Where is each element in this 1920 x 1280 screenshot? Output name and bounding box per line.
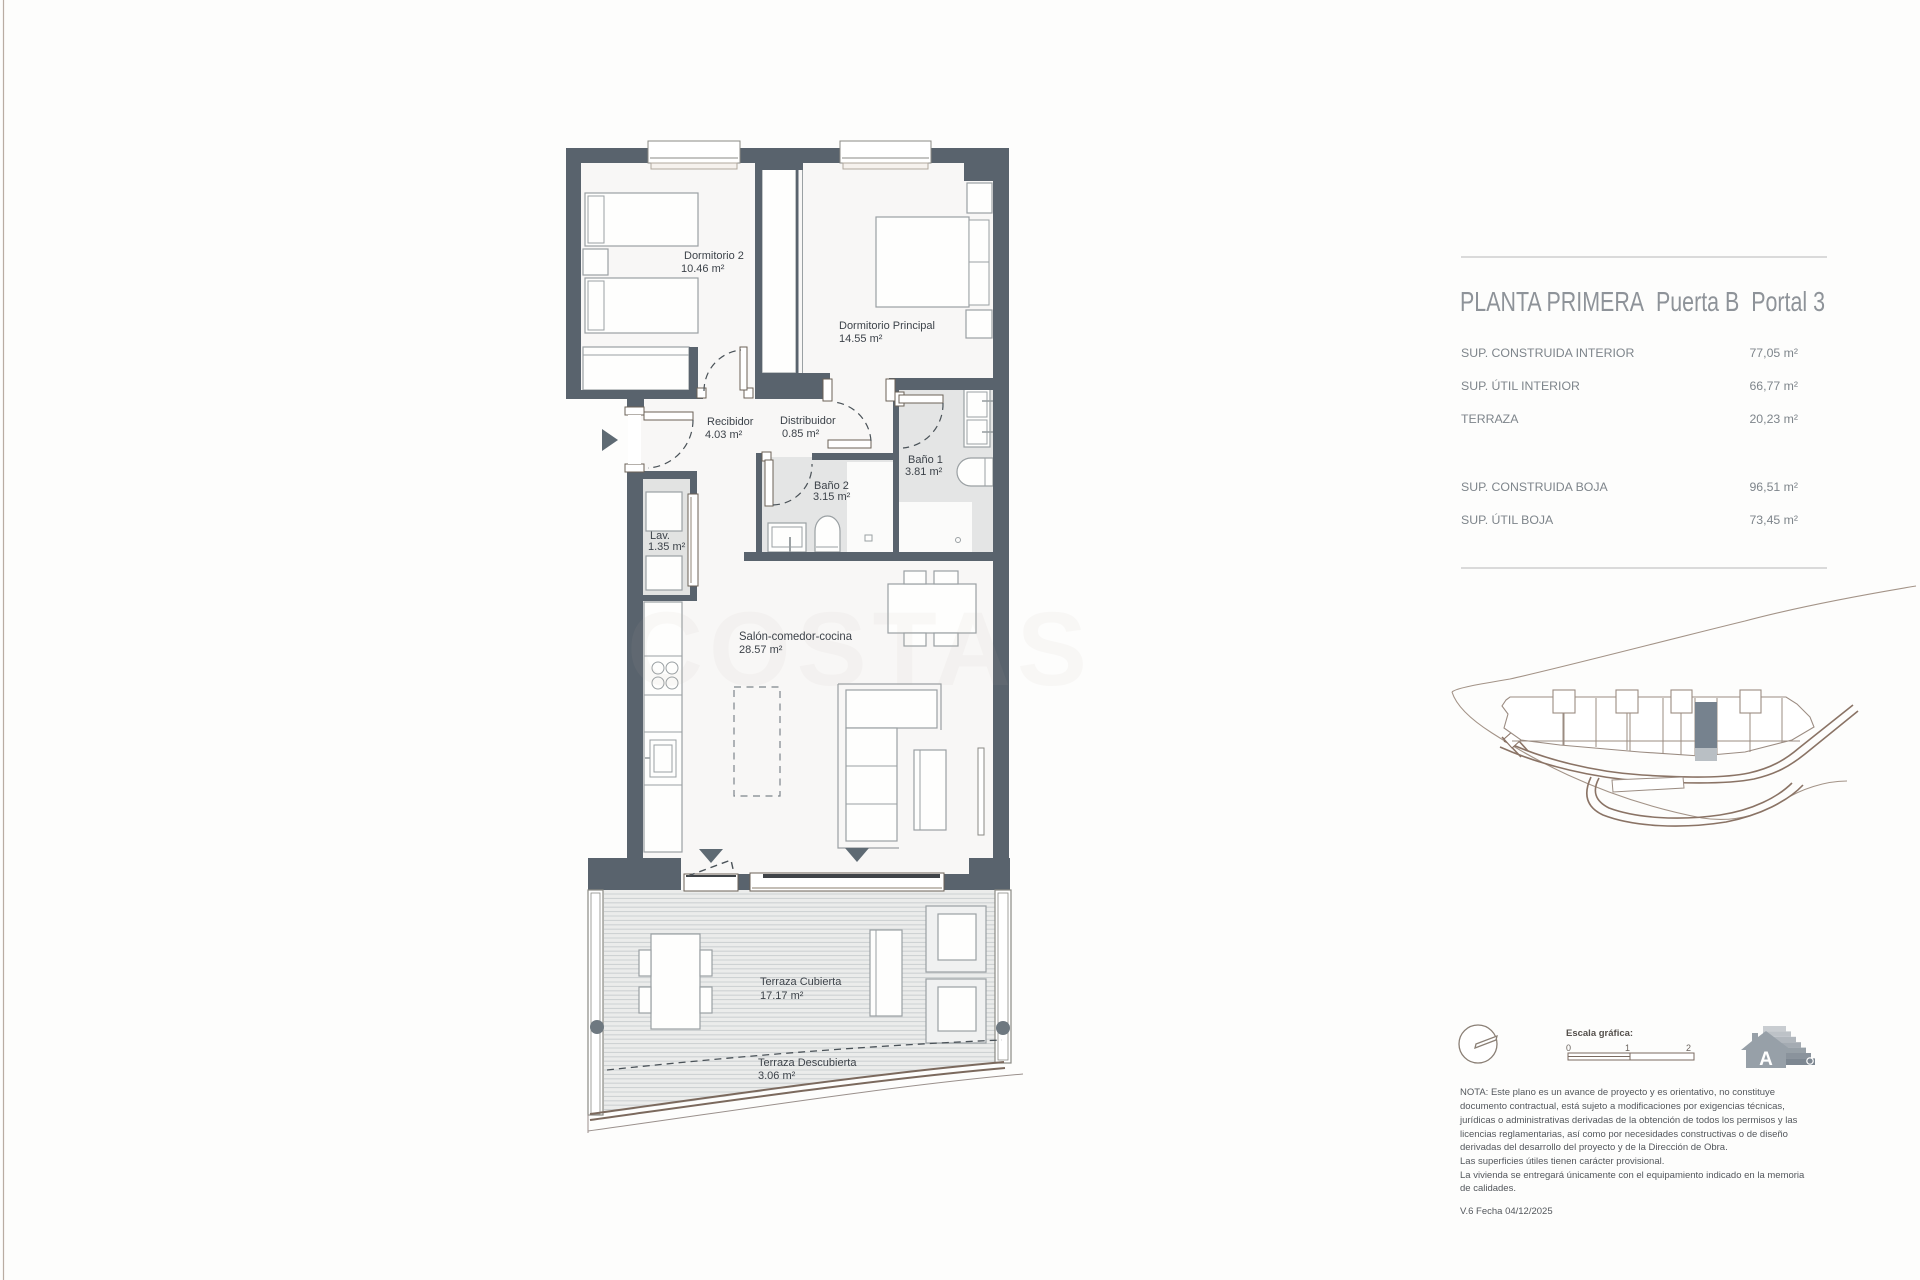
svg-text:TERRAZA: TERRAZA (1461, 412, 1519, 426)
svg-text:A: A (1759, 1049, 1773, 1070)
svg-text:Terraza Cubierta: Terraza Cubierta (760, 976, 842, 988)
svg-text:Recibidor: Recibidor (707, 416, 754, 428)
svg-text:Dormitorio 2: Dormitorio 2 (684, 250, 744, 262)
svg-text:de calidades.: de calidades. (1460, 1183, 1516, 1194)
svg-text:Baño 1: Baño 1 (908, 454, 943, 466)
svg-text:96,51 m²: 96,51 m² (1749, 480, 1798, 494)
svg-text:14.55 m²: 14.55 m² (839, 333, 883, 345)
svg-text:SUP. CONSTRUIDA INTERIOR: SUP. CONSTRUIDA INTERIOR (1461, 346, 1634, 360)
svg-text:1.35 m²: 1.35 m² (648, 541, 686, 553)
svg-text:28.57 m²: 28.57 m² (739, 644, 783, 656)
svg-text:SUP. ÚTIL BOJA: SUP. ÚTIL BOJA (1461, 512, 1554, 527)
svg-text:V.6 Fecha 04/12/2025: V.6 Fecha 04/12/2025 (1460, 1206, 1553, 1217)
svg-text:Terraza Descubierta: Terraza Descubierta (758, 1057, 857, 1069)
svg-text:SUP. CONSTRUIDA BOJA: SUP. CONSTRUIDA BOJA (1461, 480, 1608, 494)
svg-text:4.03 m²: 4.03 m² (705, 429, 743, 441)
svg-text:Distribuidor: Distribuidor (780, 415, 836, 427)
svg-text:77,05 m²: 77,05 m² (1749, 346, 1798, 360)
svg-text:jurídicas o administrativas de: jurídicas o administrativas derivadas de… (1459, 1115, 1798, 1126)
svg-text:derivadas del desarrollo del p: derivadas del desarrollo del proyecto y … (1460, 1142, 1728, 1153)
svg-text:SUP. ÚTIL INTERIOR: SUP. ÚTIL INTERIOR (1461, 378, 1580, 393)
svg-text:documento contractual, está su: documento contractual, está sujeto a mod… (1460, 1101, 1785, 1112)
svg-text:3.15 m²: 3.15 m² (813, 491, 851, 503)
svg-text:10.46 m²: 10.46 m² (681, 263, 725, 275)
svg-text:NOTA: Este plano es un avance: NOTA: Este plano es un avance de proyect… (1460, 1087, 1775, 1098)
svg-text:Las superficies útiles tienen: Las superficies útiles tienen carácter p… (1460, 1156, 1664, 1167)
svg-text:licencias reglamentarias, así: licencias reglamentarias, así como por n… (1460, 1129, 1788, 1140)
svg-text:La vivienda se entregará única: La vivienda se entregará únicamente con … (1460, 1170, 1805, 1181)
svg-text:3.81 m²: 3.81 m² (905, 466, 943, 478)
svg-text:0.85 m²: 0.85 m² (782, 428, 820, 440)
svg-text:Salón-comedor-cocina: Salón-comedor-cocina (739, 629, 852, 643)
svg-text:0: 0 (1566, 1043, 1571, 1053)
svg-text:PLANTA PRIMERA Puerta B Port: PLANTA PRIMERA Puerta B Portal 3 (1460, 286, 1825, 317)
svg-text:73,45 m²: 73,45 m² (1749, 513, 1798, 527)
svg-text:17.17 m²: 17.17 m² (760, 990, 804, 1002)
svg-text:20,23 m²: 20,23 m² (1749, 412, 1798, 426)
svg-text:COSTAS: COSTAS (627, 591, 1093, 708)
svg-text:Dormitorio Principal: Dormitorio Principal (839, 320, 935, 332)
svg-text:66,77 m²: 66,77 m² (1749, 379, 1798, 393)
svg-text:2: 2 (1686, 1043, 1691, 1053)
svg-text:1: 1 (1625, 1043, 1630, 1053)
svg-text:Escala gráfica:: Escala gráfica: (1566, 1028, 1633, 1039)
svg-text:3.06 m²: 3.06 m² (758, 1070, 796, 1082)
